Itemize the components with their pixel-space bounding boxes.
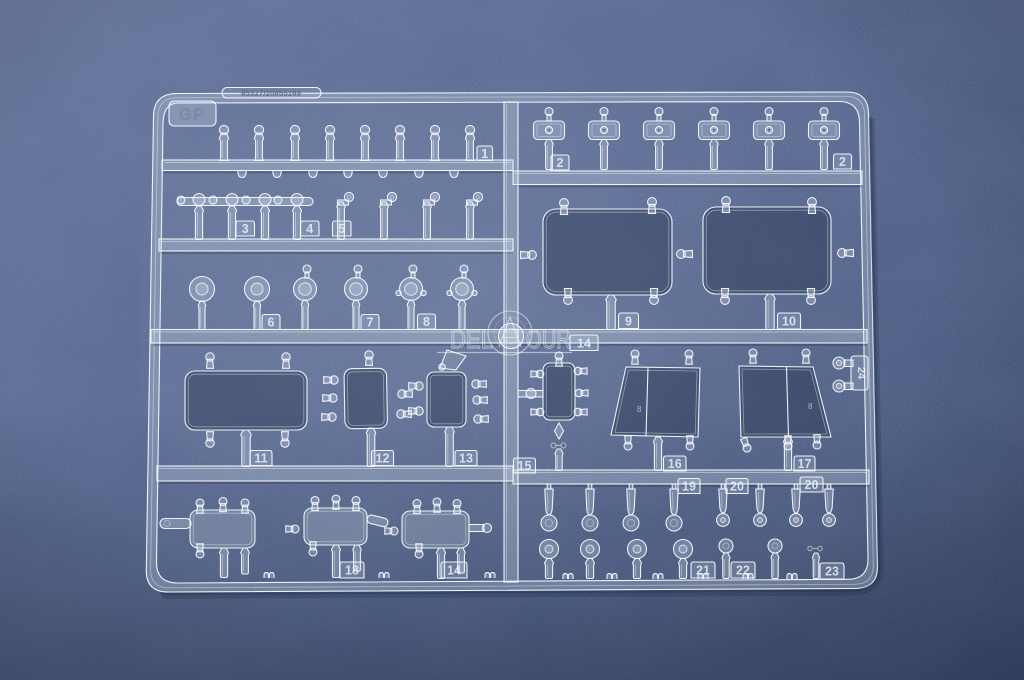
svg-text:DEL: DEL [450, 324, 493, 354]
svg-text:20: 20 [730, 480, 744, 494]
svg-text:4: 4 [306, 222, 313, 236]
svg-text:8: 8 [637, 405, 642, 414]
svg-text:8: 8 [808, 402, 813, 411]
svg-text:24: 24 [855, 367, 867, 380]
svg-text:12: 12 [376, 452, 390, 466]
svg-text:2: 2 [839, 155, 846, 169]
svg-text:7: 7 [367, 316, 374, 330]
svg-text:11: 11 [254, 452, 267, 466]
svg-text:14: 14 [447, 564, 461, 578]
svg-text:13: 13 [459, 452, 473, 466]
svg-text:3: 3 [242, 222, 249, 236]
svg-text:9: 9 [625, 314, 632, 328]
svg-text:14: 14 [577, 336, 591, 350]
svg-text:15: 15 [518, 459, 532, 473]
svg-text:2: 2 [557, 156, 564, 170]
svg-text:17: 17 [798, 457, 812, 471]
svg-text:16: 16 [668, 457, 682, 471]
svg-text:6: 6 [268, 316, 275, 330]
svg-text:GP: GP [179, 105, 206, 124]
svg-text:85327/20855169: 85327/20855169 [241, 89, 302, 98]
svg-text:OUR: OUR [526, 324, 571, 354]
svg-text:8: 8 [423, 315, 430, 329]
svg-text:19: 19 [682, 480, 696, 494]
svg-text:20: 20 [805, 478, 819, 492]
svg-text:1: 1 [481, 147, 488, 161]
svg-text:23: 23 [825, 565, 839, 579]
svg-text:18: 18 [345, 564, 359, 578]
svg-text:10: 10 [782, 315, 796, 329]
